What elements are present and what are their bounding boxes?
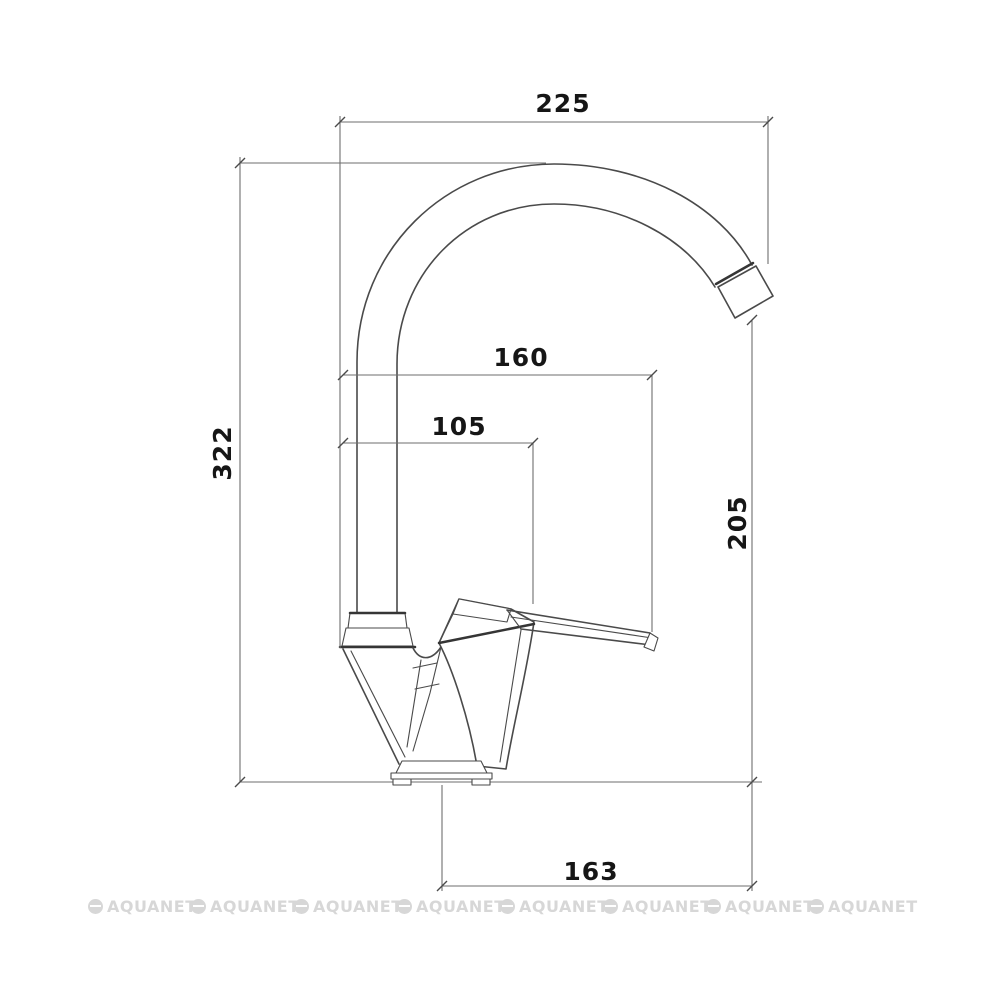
watermark-item: AQUANET [500,897,589,916]
base-flange [391,773,492,779]
watermark-item: AQUANET [809,897,898,916]
watermark-label: AQUANET [828,897,918,916]
base-foot-right [472,779,490,785]
faucet-technical-drawing: 225 322 160 105 205 163 [0,0,1000,1000]
watermark-item: AQUANET [88,897,177,916]
lever-tip [644,633,658,651]
aquanet-logo-icon [88,899,103,914]
pipe-step-collar [348,613,407,628]
watermark-item: AQUANET [603,897,692,916]
mounting-nut [342,628,413,646]
watermark-item: AQUANET [191,897,280,916]
spout-inner-edge [397,204,715,613]
watermark-label: AQUANET [725,897,815,916]
base-foot-left [393,779,411,785]
aquanet-logo-icon [500,899,515,914]
dim-label-160: 160 [493,343,548,372]
faucet-outline [340,164,773,785]
aquanet-logo-icon [294,899,309,914]
watermark-label: AQUANET [313,897,403,916]
watermark-label: AQUANET [210,897,300,916]
aquanet-logo-icon [809,899,824,914]
lever-bottom-edge [521,629,651,645]
neck-left-edge [407,660,421,747]
spout-outer-edge [357,164,752,613]
spout-nozzle [718,266,773,318]
watermark-item: AQUANET [706,897,795,916]
watermark-label: AQUANET [622,897,712,916]
handle-body [439,599,534,769]
body-cone-left-inner [351,651,405,757]
dimension-tick-marks [235,117,773,891]
body-cone-left-edge [343,649,399,764]
watermark-label: AQUANET [107,897,197,916]
watermark-item: AQUANET [397,897,486,916]
dim-label-322: 322 [208,425,237,480]
watermark-item: AQUANET [294,897,383,916]
dim-label-225: 225 [535,89,590,118]
watermark-label: AQUANET [519,897,609,916]
dim-label-105: 105 [431,412,486,441]
base-upper-step [396,761,487,773]
aquanet-logo-icon [706,899,721,914]
aquanet-logo-icon [397,899,412,914]
dim-label-163: 163 [563,857,618,886]
dim-label-205: 205 [723,495,752,550]
body-saddle-curve [413,647,441,658]
dimension-lines [235,116,773,891]
aquanet-logo-icon [603,899,618,914]
watermark-label: AQUANET [416,897,506,916]
watermark-row: AQUANET AQUANET AQUANET AQUANET AQUANET … [88,897,898,916]
faucet-dimension-drawing-page: 225 322 160 105 205 163 AQUANET AQUANET … [0,0,1000,1000]
aquanet-logo-icon [191,899,206,914]
